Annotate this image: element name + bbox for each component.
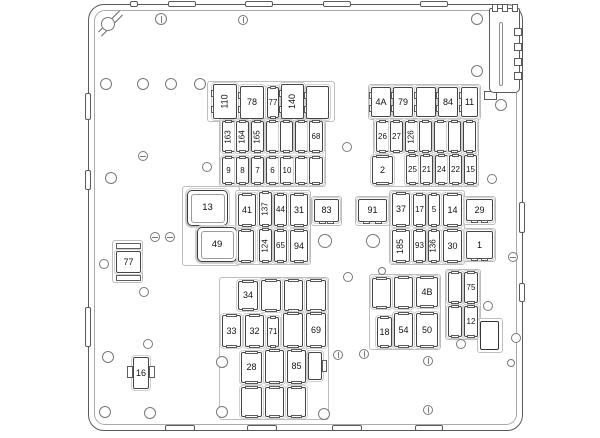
mounting-hole [471,13,483,25]
fuse-label: 137 [262,202,270,215]
fuse-label: 78 [247,98,257,107]
fuse-25: 25 [406,155,419,184]
mounting-hole [495,99,507,111]
mounting-hole [143,339,153,349]
fuse-41: 41 [238,194,256,226]
fuse-empty-slot [306,86,329,119]
screw-hole [423,405,433,415]
mounting-hole [101,17,115,31]
fuse-empty-slot [280,121,293,152]
fuse-label: 27 [392,133,401,141]
connector-tab [116,243,141,249]
fuse-16: 16 [133,357,149,389]
fuse-label: 10 [283,167,292,175]
frame-tab-bottom [247,425,277,431]
comb-tooth-top [502,4,508,12]
comb-tooth-top [492,4,498,12]
fuse-empty-slot [416,87,436,117]
frame-tab-bottom [332,425,362,431]
fuse-14: 14 [443,194,462,226]
fuse-68: 68 [309,121,323,152]
screw-slot [338,352,339,358]
fuse-24: 24 [435,155,448,184]
fuse-label: 28 [246,363,256,372]
comb-tooth-right [514,28,522,36]
fuse-49: 49 [197,227,237,262]
fuse-4B: 4B [416,277,438,307]
fuse-empty-slot [266,121,279,152]
fuse-4A: 4A [371,87,391,117]
fuse-71: 71 [267,317,279,347]
fuse-37: 37 [392,193,410,226]
fuse-label: 71 [269,328,278,336]
fuse-44: 44 [274,194,287,226]
fuse-136: 136 [428,230,440,262]
mounting-hole [102,351,114,363]
screw-slot [152,237,158,238]
fuse-10: 10 [280,157,294,184]
fuse-empty-slot [287,387,306,417]
fuse-empty-slot [238,230,254,262]
fuse-label: 22 [451,166,460,174]
fuse-label: 29 [474,206,484,215]
fuse-140: 140 [281,84,304,119]
comb-tooth-top [512,4,518,12]
fuse-label: 25 [408,166,417,174]
fuse-label: 1 [477,241,482,250]
fuse-124: 124 [259,229,272,262]
fuse-empty-slot [284,280,303,311]
mounting-hole [105,172,117,184]
frame-tab-left [85,93,91,120]
fuse-label: 126 [408,130,416,143]
mounting-hole [100,78,112,90]
screw-hole [165,232,175,242]
fuse-label: 12 [467,318,476,326]
screw-slot [364,351,365,357]
mounting-hole [378,267,386,275]
fuse-65: 65 [274,230,287,262]
connector-tab [127,366,133,378]
screw-slot [428,407,429,413]
screw-slot [167,237,173,238]
comb-connector-slot [499,22,503,86]
fuse-31: 31 [290,194,308,226]
fuse-83: 83 [314,199,339,222]
fuse-label: 17 [415,206,424,214]
fuse-84: 84 [438,87,458,117]
fuse-label: 54 [398,326,408,335]
fuse-label: 164 [239,130,247,143]
fuse-empty-slot [448,306,462,337]
fuse-label: 50 [422,326,432,335]
fuse-126: 126 [405,121,418,152]
fuse-label: 83 [321,206,331,215]
fuse-empty-slot [419,121,432,152]
fuse-empty-slot [309,157,323,184]
fuse-label: 5 [432,206,436,214]
fuse-15: 15 [464,155,477,184]
fuse-110: 110 [213,84,237,119]
mounting-hole [366,234,380,248]
fuse-empty-slot [265,387,284,417]
fuse-17: 17 [413,194,426,226]
fuse-label: 31 [294,206,304,215]
fuse-77: 77 [116,251,141,273]
fuse-label: 79 [398,98,408,107]
fuse-empty-slot [295,121,308,152]
fuse-label: 110 [220,94,229,108]
mounting-hole [144,407,156,419]
screw-hole [150,232,160,242]
screw-slot [161,16,162,23]
fuse-2: 2 [372,156,393,184]
screw-hole [155,13,167,25]
frame-tab-top [420,1,448,7]
fuse-empty-slot [265,350,284,383]
fuse-34: 34 [238,281,258,310]
fuse-label: 7 [255,167,259,175]
fuse-label: 94 [294,242,304,251]
mounting-hole [507,359,515,367]
fuse-label: 165 [254,130,262,143]
fuse-label: 37 [396,205,406,214]
frame-tab-right [519,283,525,302]
screw-hole [359,349,369,359]
fuse-label: 11 [465,98,474,107]
fuse-label: 93 [415,242,424,250]
fuse-label: 14 [447,206,457,215]
mounting-hole [487,174,497,184]
fuse-label: 24 [437,166,446,174]
fuse-label: 44 [276,206,285,214]
connector-tab [116,275,141,281]
fuse-label: 4A [375,98,386,107]
fuse-13: 13 [187,190,228,226]
fuse-27: 27 [390,121,403,152]
mounting-hole [342,142,352,152]
fuse-29: 29 [466,199,493,221]
mounting-hole [483,301,493,311]
fuse-empty-slot [295,157,308,184]
mounting-hole [194,78,206,90]
fuse-label: 6 [270,167,274,175]
fuse-28: 28 [241,352,262,383]
mounting-hole [137,78,149,90]
fuse-77: 77 [267,87,279,118]
mounting-hole [318,234,332,248]
fuse-26: 26 [376,121,389,152]
mounting-hole [139,287,149,297]
screw-hole [423,356,433,366]
fuse-label: 68 [312,133,321,141]
fuse-label: 4B [421,288,432,297]
fuse-137: 137 [259,192,272,226]
fuse-empty-slot [308,352,322,380]
frame-tab-top [245,1,273,7]
fuse-label: 16 [136,369,146,378]
fuse-75: 75 [464,272,478,303]
fuse-label: 32 [249,327,259,336]
fuse-label: 49 [212,240,223,250]
fuse-label: 185 [397,238,406,253]
screw-slot [140,156,146,157]
fuse-box-diagram: 1107877140163164165689876104A79841126271… [0,0,600,438]
fuse-85: 85 [287,350,306,383]
fuse-label: 65 [276,242,285,250]
fuse-empty-slot [448,121,461,152]
fuse-22: 22 [449,155,462,184]
fuse-91: 91 [358,199,387,222]
mounting-hole [318,408,330,420]
mounting-hole [202,162,212,172]
fuse-94: 94 [290,230,308,262]
fuse-32: 32 [245,315,264,347]
screw-hole [333,350,343,360]
fuse-30: 30 [443,230,462,262]
mounting-hole [216,356,228,368]
fuse-label: 85 [291,362,301,371]
fuse-label: 8 [240,167,244,175]
fuse-93: 93 [413,230,426,262]
fuse-164: 164 [236,121,249,152]
fuse-label: 41 [242,206,252,215]
frame-tab-right [519,202,525,233]
fuse-8: 8 [236,157,249,184]
frame-tab-top [323,1,351,7]
fuse-empty-slot [241,387,262,417]
comb-tooth-right [514,58,522,66]
comb-tooth-right [514,72,522,80]
fuse-163: 163 [222,121,235,152]
fuse-empty-slot [480,321,499,350]
fuse-empty-slot [448,272,462,303]
fuse-7: 7 [251,157,264,184]
screw-slot [510,257,516,258]
fuse-78: 78 [240,86,264,119]
fuse-label: 18 [379,328,389,337]
fuse-label: 140 [288,94,297,109]
fuse-1: 1 [466,231,493,259]
connector-tab [322,360,327,372]
fuse-33: 33 [222,315,241,347]
screw-hole [508,252,518,262]
fuse-label: 84 [443,98,453,107]
mounting-hole [99,406,111,418]
fuse-18: 18 [377,317,392,347]
fuse-label: 21 [422,166,431,174]
fuse-label: 33 [226,327,236,336]
fuse-label: 30 [447,242,457,251]
frame-tab-left [85,307,91,347]
fuse-label: 34 [243,291,253,300]
fuse-label: 26 [378,133,387,141]
fuse-label: 136 [430,239,438,252]
fuse-label: 9 [226,167,230,175]
frame-tab-bottom [165,425,195,431]
fuse-empty-slot [434,121,447,152]
fuse-empty-slot [394,277,413,308]
mounting-hole [343,272,353,282]
fuse-69: 69 [306,313,326,347]
fuse-11: 11 [461,87,478,117]
frame-tab-top [130,1,138,7]
screw-slot [243,17,244,23]
screw-hole [138,151,148,161]
mounting-hole [216,406,228,418]
fuse-label: 69 [311,326,321,335]
fuse-empty-slot [463,121,476,152]
fuse-185: 185 [392,230,410,262]
mounting-hole [456,339,466,349]
mounting-hole [511,333,521,343]
fuse-21: 21 [420,155,433,184]
fuse-label: 91 [367,206,377,215]
comb-tooth-right [514,43,522,51]
mounting-hole [165,78,177,90]
screw-hole [238,15,248,25]
fuse-5: 5 [428,194,440,226]
fuse-empty-slot [372,278,391,308]
mounting-hole [99,259,109,269]
fuse-6: 6 [266,157,279,184]
frame-tab-top [168,1,196,7]
fuse-165: 165 [251,121,264,152]
fuse-label: 124 [262,239,270,252]
screw-slot [428,358,429,364]
fuse-label: 15 [466,166,475,174]
fuse-50: 50 [416,313,438,347]
connector-tab [149,366,155,378]
frame-tab-left [85,170,91,190]
fuse-54: 54 [394,313,413,347]
frame-tab-bottom [415,425,443,431]
fuse-12: 12 [464,306,478,337]
fuse-label: 75 [467,284,476,292]
fuse-label: 2 [380,166,385,175]
fuse-label: 77 [269,99,278,107]
fuse-9: 9 [222,157,235,184]
fuse-79: 79 [393,87,413,117]
fuse-label: 163 [225,130,233,143]
fuse-empty-slot [261,280,281,311]
fuse-label: 13 [202,203,213,213]
fuse-label: 77 [123,258,133,267]
mounting-hole [471,65,483,77]
fuse-empty-slot [306,280,326,311]
fuse-empty-slot [283,313,303,347]
